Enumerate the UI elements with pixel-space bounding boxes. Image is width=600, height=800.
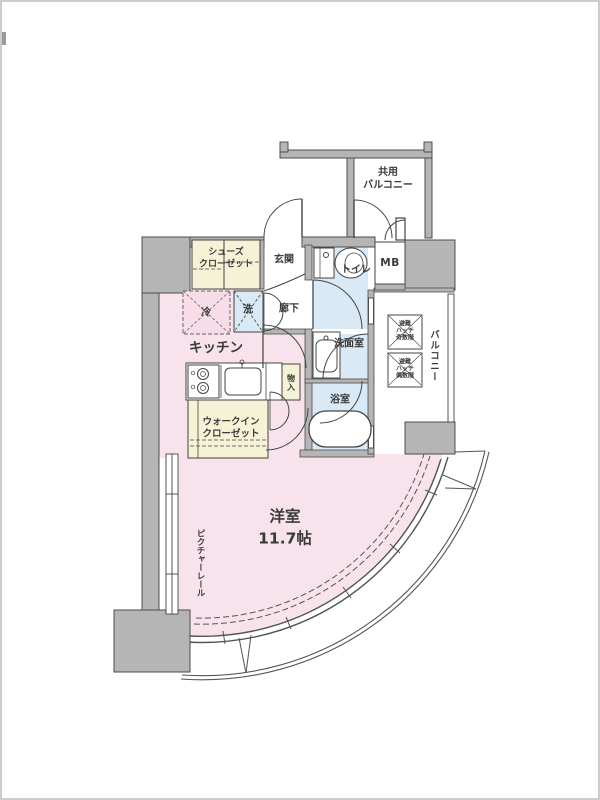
toilet-label: トイレ [341, 264, 371, 277]
main-room-label: 洋室11.7帖 [258, 506, 312, 551]
picture-rail-label: ピクチャーレール [194, 529, 206, 597]
shoe-closet-label: シューズクローゼット [199, 247, 253, 270]
storage-label: 物入 [286, 374, 297, 392]
kitchen-counter [186, 360, 282, 400]
entrance-step [264, 274, 305, 291]
meter-box-label: MB [380, 257, 399, 271]
entrance-label: 玄関 [274, 254, 294, 267]
fridge-label: 冷 [201, 307, 211, 320]
hatch-odd-label: 避難ハッチ奇数階 [396, 322, 414, 343]
bathtub [309, 411, 371, 447]
hallway-label: 廊下 [279, 303, 299, 316]
floorplan-drawing [2, 2, 600, 800]
walk-in-closet-label: ウォークインクローゼット [202, 417, 259, 442]
floorplan-page: 共用バルコニー シューズクローゼット 玄関 トイレ MB 廊下 冷 洗 キッチン… [0, 0, 600, 800]
shared-balcony-label: 共用バルコニー [363, 166, 413, 192]
hatch-even-label: 避難ハッチ偶数階 [396, 360, 414, 381]
washroom-label: 洗面室 [334, 338, 364, 351]
side-balcony-label: バルコニー [426, 330, 440, 383]
washer-label: 洗 [243, 304, 253, 317]
bathroom-label: 浴室 [330, 394, 350, 407]
kitchen-label: キッチン [189, 340, 243, 358]
